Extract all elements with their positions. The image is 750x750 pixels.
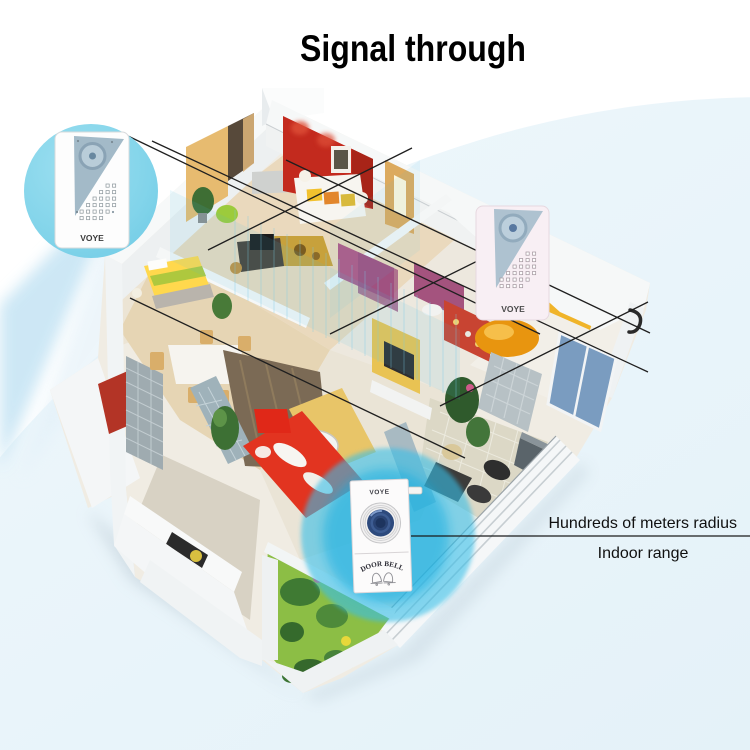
svg-text:Signal through: Signal through [300, 28, 526, 69]
svg-text:VOYE: VOYE [369, 489, 389, 497]
svg-text:Indoor range: Indoor range [598, 545, 689, 562]
svg-text:VOYE: VOYE [501, 304, 525, 314]
svg-text:VOYE: VOYE [80, 233, 104, 243]
svg-text:Hundreds of meters radius: Hundreds of meters radius [548, 515, 737, 532]
